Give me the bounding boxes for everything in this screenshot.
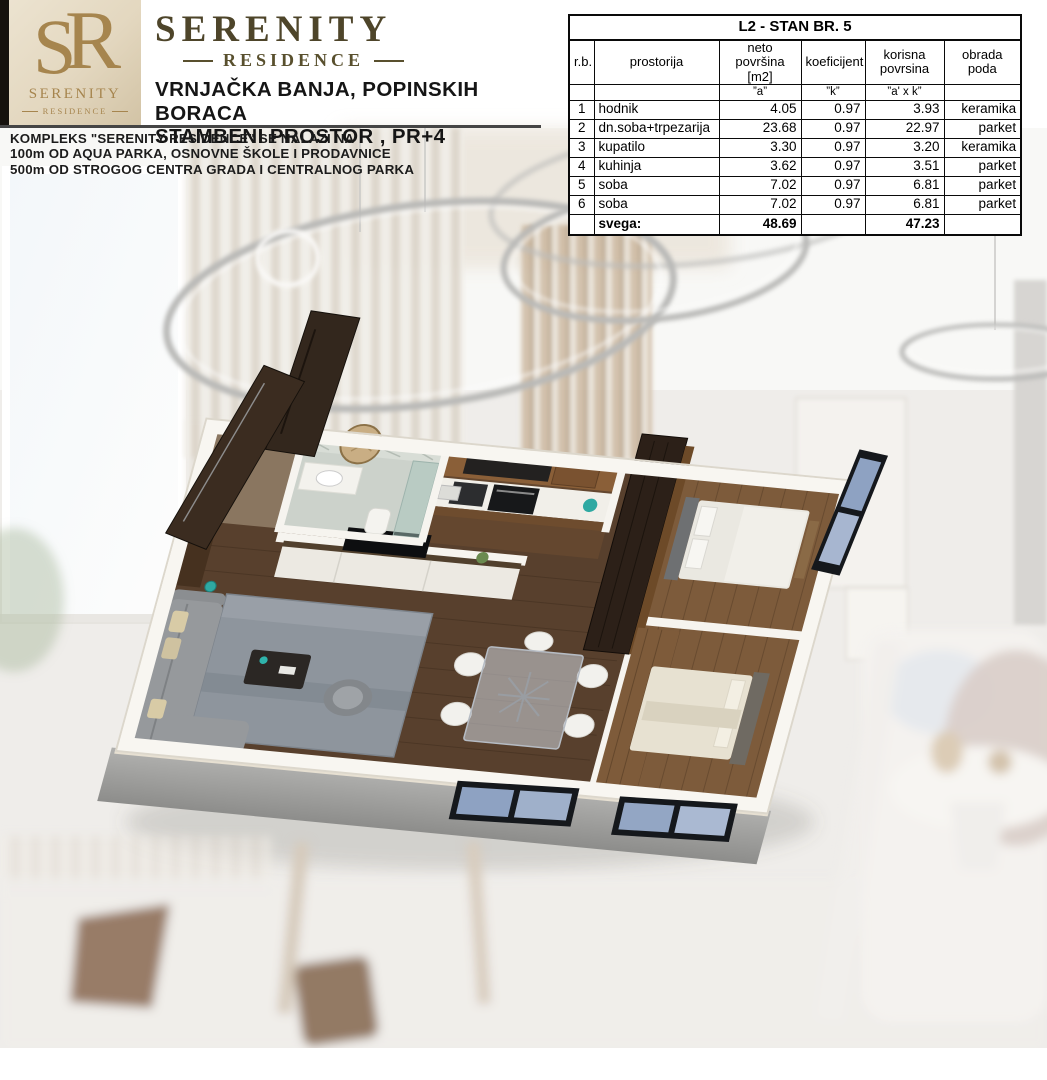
left-edge-strip bbox=[0, 0, 9, 127]
cell-rb: 2 bbox=[569, 119, 594, 138]
cell-koef: 0.97 bbox=[801, 138, 865, 157]
cell-neto: 4.05 bbox=[719, 100, 801, 119]
total-cell-empty bbox=[569, 214, 594, 235]
window-bedroom2 bbox=[611, 796, 738, 842]
apartment-area-table: L2 - STAN BR. 5 r.b. prostorija neto pov… bbox=[568, 14, 1022, 236]
subheader-cell bbox=[944, 84, 1021, 100]
cell-koef: 0.97 bbox=[801, 119, 865, 138]
brand-title: SERENITY bbox=[155, 10, 555, 50]
cell-room: soba bbox=[594, 176, 719, 195]
window-dining bbox=[449, 781, 580, 827]
logo-wordmark: SERENITY bbox=[9, 86, 141, 103]
table-row: 3 kupatilo 3.30 0.97 3.20 keramika bbox=[569, 138, 1021, 157]
cell-korisna: 22.97 bbox=[865, 119, 944, 138]
col-header-koeficijent: koeficijent bbox=[801, 40, 865, 84]
location-info: KOMPLEKS "SERENITY RESIDENCE" SE NALAZI … bbox=[10, 131, 414, 177]
cell-korisna: 3.93 bbox=[865, 100, 944, 119]
total-label: svega: bbox=[594, 214, 719, 235]
brand-header: SERENITY RESIDENCE VRNJAČKA BANJA, POPIN… bbox=[155, 10, 555, 149]
location-info-line-3: 500m OD STROGOG CENTRA GRADA I CENTRALNO… bbox=[10, 162, 414, 177]
location-info-line-2: 100m OD AQUA PARKA, OSNOVNE ŠKOLE I PROD… bbox=[10, 146, 414, 161]
col-header-prostorija: prostorija bbox=[594, 40, 719, 84]
cell-neto: 7.02 bbox=[719, 195, 801, 214]
cell-koef: 0.97 bbox=[801, 176, 865, 195]
cell-room: soba bbox=[594, 195, 719, 214]
subtitle-dash-right bbox=[374, 60, 404, 62]
logo: R S SERENITY RESIDENCE bbox=[9, 0, 141, 126]
col-header-neto: neto površina [m2] bbox=[719, 40, 801, 84]
cell-koef: 0.97 bbox=[801, 100, 865, 119]
table-title-row: L2 - STAN BR. 5 bbox=[569, 15, 1021, 40]
cell-korisna: 3.20 bbox=[865, 138, 944, 157]
tagline-dash-left bbox=[22, 111, 38, 112]
tagline-text: RESIDENCE bbox=[43, 106, 108, 116]
total-koef bbox=[801, 214, 865, 235]
table-row: 4 kuhinja 3.62 0.97 3.51 parket bbox=[569, 157, 1021, 176]
col-header-rb: r.b. bbox=[569, 40, 594, 84]
cell-room: kuhinja bbox=[594, 157, 719, 176]
total-korisna: 47.23 bbox=[865, 214, 944, 235]
logo-monogram: R S bbox=[9, 0, 141, 92]
tagline-dash-right bbox=[112, 111, 128, 112]
col-header-obrada: obrada poda bbox=[944, 40, 1021, 84]
subtitle-text: RESIDENCE bbox=[223, 50, 364, 71]
table-row: 2 dn.soba+trpezarija 23.68 0.97 22.97 pa… bbox=[569, 119, 1021, 138]
address-line-1: VRNJAČKA BANJA, POPINSKIH BORACA bbox=[155, 78, 555, 125]
col-header-korisna: korisna povrsina bbox=[865, 40, 944, 84]
cell-obrada: parket bbox=[944, 195, 1021, 214]
cell-neto: 3.62 bbox=[719, 157, 801, 176]
cell-room: hodnik bbox=[594, 100, 719, 119]
cell-rb: 3 bbox=[569, 138, 594, 157]
monogram-letter-s: S bbox=[33, 2, 76, 92]
subheader-cell bbox=[594, 84, 719, 100]
cell-obrada: parket bbox=[944, 157, 1021, 176]
cell-korisna: 6.81 bbox=[865, 176, 944, 195]
cell-neto: 23.68 bbox=[719, 119, 801, 138]
bedroom-1 bbox=[664, 497, 823, 592]
cell-obrada: parket bbox=[944, 176, 1021, 195]
logo-tagline: RESIDENCE bbox=[9, 106, 141, 116]
table-row: 6 soba 7.02 0.97 6.81 parket bbox=[569, 195, 1021, 214]
subheader-cell: ”k” bbox=[801, 84, 865, 100]
table-total-row: svega: 48.69 47.23 bbox=[569, 214, 1021, 235]
subheader-cell: ”a” bbox=[719, 84, 801, 100]
cell-korisna: 6.81 bbox=[865, 195, 944, 214]
oven bbox=[487, 484, 540, 514]
cell-rb: 1 bbox=[569, 100, 594, 119]
brand-subtitle: RESIDENCE bbox=[183, 50, 555, 71]
cell-obrada: keramika bbox=[944, 138, 1021, 157]
cell-room: dn.soba+trpezarija bbox=[594, 119, 719, 138]
table-title: L2 - STAN BR. 5 bbox=[569, 15, 1021, 40]
cell-rb: 4 bbox=[569, 157, 594, 176]
subheader-cell: ”a' x k” bbox=[865, 84, 944, 100]
header-divider bbox=[0, 125, 541, 128]
location-info-line-1: KOMPLEKS "SERENITY RESIDENCE" SE NALAZI … bbox=[10, 131, 414, 146]
kitchen-sink bbox=[438, 485, 461, 500]
cell-korisna: 3.51 bbox=[865, 157, 944, 176]
cell-obrada: parket bbox=[944, 119, 1021, 138]
table-header-row: r.b. prostorija neto površina [m2] koefi… bbox=[569, 40, 1021, 84]
cell-koef: 0.97 bbox=[801, 195, 865, 214]
coffee-table bbox=[243, 649, 312, 689]
total-neto: 48.69 bbox=[719, 214, 801, 235]
table-row: 1 hodnik 4.05 0.97 3.93 keramika bbox=[569, 100, 1021, 119]
cell-neto: 3.30 bbox=[719, 138, 801, 157]
apartment-area-table-wrap: L2 - STAN BR. 5 r.b. prostorija neto pov… bbox=[568, 14, 1022, 236]
total-obrada bbox=[944, 214, 1021, 235]
table-subheader-row: ”a” ”k” ”a' x k” bbox=[569, 84, 1021, 100]
cell-rb: 5 bbox=[569, 176, 594, 195]
table-row: 5 soba 7.02 0.97 6.81 parket bbox=[569, 176, 1021, 195]
cell-obrada: keramika bbox=[944, 100, 1021, 119]
subheader-cell bbox=[569, 84, 594, 100]
cell-rb: 6 bbox=[569, 195, 594, 214]
cell-neto: 7.02 bbox=[719, 176, 801, 195]
cell-koef: 0.97 bbox=[801, 157, 865, 176]
flyer-page: R S SERENITY RESIDENCE SERENITY RESIDENC… bbox=[0, 0, 1047, 1080]
subtitle-dash-left bbox=[183, 60, 213, 62]
cell-room: kupatilo bbox=[594, 138, 719, 157]
